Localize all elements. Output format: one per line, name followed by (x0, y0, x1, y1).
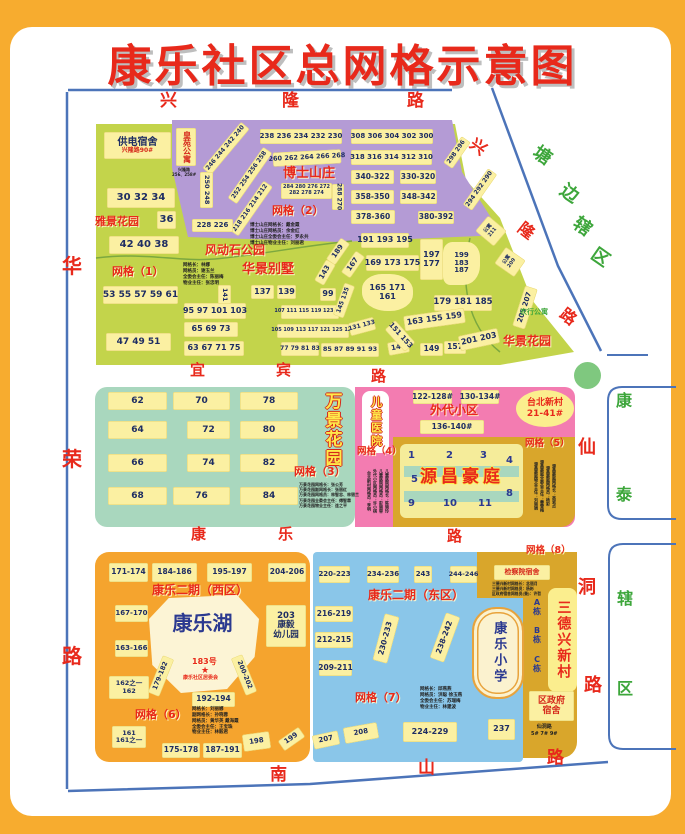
grid-note: 源昌豪庭网格长：高淑贞源昌豪庭网格员：杨彩源昌豪庭全委会主任：秦雪梅源昌豪庭物业… (528, 453, 562, 519)
district-label: 区 (617, 680, 633, 698)
building-box: 195-197 (207, 563, 252, 582)
number-label: 11 (478, 498, 492, 509)
building-box: 330-320 (400, 170, 436, 184)
building-box: 184-186 (152, 563, 197, 582)
district-label: 泰 (616, 486, 632, 504)
building-box: 380-392 (418, 211, 454, 224)
road-label: 洞 (578, 578, 596, 598)
building-box: 358-350 (351, 190, 394, 204)
area-label: 网格（5） (525, 439, 570, 450)
building-box: 171-174 (109, 563, 148, 582)
building-box: 65 69 73 (184, 322, 238, 337)
building-box: 224-229 (403, 722, 457, 742)
building-box: 供电宿舍兴隆路90# (104, 132, 171, 159)
building-box: 74 (187, 454, 230, 472)
building-box: 68 (108, 487, 167, 505)
building-box: 85 87 89 91 93 (321, 343, 379, 357)
road-label: 宾 (276, 362, 291, 379)
building-box: 64 (108, 421, 167, 439)
school-block: 康乐小学 (472, 607, 524, 699)
building-box: 199183187 (443, 242, 480, 285)
grid-note: 网格长：刘丽娜副网格长：孙晓蓉网格员：黄华英 戴海霞全委会主任：王宝珠物业主任：… (192, 707, 239, 736)
building-box: 141 (218, 285, 231, 304)
grid-note: 网格长：邱燕燕网格员：洪聪 徐玉燕全委会主任：苏瑞梅物业主任：林建波 (420, 687, 462, 710)
number-label: 8 (506, 488, 513, 499)
area-label: 网格（7） (355, 692, 407, 704)
building-box: 220-223 (319, 566, 350, 583)
grid-note: 三德兴新村网格长：念丽月三德兴新村网格员：杨彬区政府宿舍网格员(兼)：许哲 (492, 582, 541, 597)
number-label: 3 (480, 450, 487, 461)
roundabout (574, 362, 601, 389)
building-box: 139 (277, 285, 296, 299)
building-box: 137 (251, 285, 274, 299)
area-label: 华景花园 (503, 335, 551, 348)
area-label: 儿童医院 (365, 393, 386, 450)
number-label: 9 (408, 498, 415, 509)
area-label: 网格（6） (135, 709, 187, 721)
building-box: 70 (173, 392, 230, 410)
building-box: 53 55 57 59 61 (103, 286, 178, 304)
building-box: 348-342 (400, 190, 437, 204)
building-box: 163-166 (115, 640, 148, 657)
community-map: 康乐社区总网格示意图 兴隆路兴隆路华荣路宜宾路康乐路南山路仙洞路塘边辖区康泰辖区… (0, 0, 685, 834)
building-box: 234-236 (367, 566, 399, 583)
grid-note: 兴隆路256、258# (172, 167, 196, 177)
road-label: 路 (584, 676, 602, 696)
building-box: 204-206 (268, 563, 306, 582)
building-box: 209-211 (319, 660, 352, 676)
building-box: 203康毅幼儿园 (266, 605, 306, 647)
road-label: 华 (62, 255, 82, 277)
building-box: 77 79 81 83 (281, 342, 319, 356)
building-box: 72 (187, 421, 230, 439)
road-label: 兴 (160, 92, 177, 111)
road-label: 仙 (578, 438, 596, 458)
building-box: 63 67 71 75 (184, 341, 244, 356)
building-box: 台北新村21-41# (516, 390, 574, 427)
building-box: 82 (240, 454, 298, 472)
number-label: 1 (408, 450, 415, 461)
building-box: 99 (320, 288, 336, 301)
road-label: 山 (418, 759, 435, 778)
road-label: 路 (547, 749, 564, 768)
building-box: 228 226 (192, 219, 233, 232)
building-box: 区政府宿舍 (529, 691, 574, 721)
grid-note: 万景花园网格长：张公芳万景花园副网格长：张丽红万景花园网格员：林智忠、林银兰万景… (299, 482, 359, 508)
building-box: 165 171161 (362, 274, 413, 311)
area-label: 华景别墅 (242, 263, 294, 278)
number-label: 10 (443, 498, 457, 509)
building-box: 237 (488, 719, 515, 740)
building-box: 187-191 (203, 743, 242, 758)
building-box: 130-134# (461, 390, 499, 404)
building-box: 107 111 115 119 123 127 (281, 305, 339, 319)
number-label: A栋 (533, 599, 541, 617)
building-box: 175-178 (162, 743, 200, 758)
building-box: 42 40 38 (109, 236, 179, 254)
area-label: 网格（4） (357, 447, 402, 458)
lake-label: 康乐湖 (160, 612, 245, 634)
building-box: 243 (414, 566, 432, 583)
number-label: B栋 (533, 627, 541, 645)
building-box: 皇苑公寓 (176, 128, 196, 166)
building-box: 250 248 (200, 172, 213, 208)
building-box: 244-246 (450, 566, 477, 583)
road-label: 路 (371, 368, 386, 385)
building-box: 162之一162 (109, 676, 149, 699)
number-label: 2 (446, 450, 453, 461)
grid-note: 儿童医院网格长：陈晓玲儿童医院网格员：彭丽容外代小区网格员：许小棋台北新村网格员… (359, 460, 397, 522)
area-label: 康乐社区居委会 (183, 676, 218, 682)
road-label: 路 (62, 645, 82, 667)
building-box: 378-360 (351, 210, 395, 224)
building-box: 136-140# (420, 420, 484, 434)
building-box: 216-219 (315, 606, 353, 622)
road-line-nanshan (68, 762, 608, 791)
building-box: 122-128# (413, 390, 452, 404)
road-label: 乐 (278, 526, 293, 543)
building-box: 95 97 101 103 (184, 303, 246, 319)
building-box: 三德兴新村 (548, 588, 577, 692)
building-box: 169 173 175 (366, 255, 419, 271)
bracket-xiaqu (609, 544, 676, 749)
road-label: 荣 (62, 448, 82, 470)
area-label: 康乐二期（东区） (368, 589, 464, 602)
building-box: 212-215 (315, 632, 353, 648)
building-box: 318 316 314 312 310 (351, 150, 432, 165)
area-label: 雅景花园 (95, 216, 139, 228)
building-box: 105 109 113 117 121 125 129 (277, 324, 349, 338)
area-label: 万景花园 (316, 390, 346, 470)
building-box: 149 (420, 343, 443, 356)
building-box: 66 (108, 454, 167, 472)
building-box: 288 270 (332, 184, 344, 210)
area-label: 外代小区 (430, 404, 478, 417)
grid-note: 网格长：林娜网格员：谢玉兰全委会主任：陈丽梅物业主任：张忠明 (183, 263, 224, 286)
building-box: 76 (173, 487, 230, 505)
road-label: 路 (407, 92, 424, 111)
building-box: 80 (240, 421, 298, 439)
number-label: C栋 (533, 656, 541, 674)
building-box: 191 193 195 (361, 233, 409, 248)
grid-note: 仙洞路5# 7# 9# (531, 724, 558, 737)
building-box: 238 236 234 232 230 (260, 129, 342, 144)
district-label: 辖 (617, 590, 633, 608)
area-label: 网格（1） (112, 266, 164, 278)
building-box: 192-194 (192, 692, 235, 707)
area-label: 网格（8） (526, 546, 571, 557)
road-label: 宜 (190, 362, 205, 379)
building-box: 62 (108, 392, 167, 410)
building-box: 308 306 304 302 300 (351, 129, 433, 144)
area-label: 源昌豪庭 (420, 468, 504, 487)
district-label: 农行公寓 (520, 309, 548, 317)
building-box: 284 280 276 272282 278 274 (281, 183, 332, 199)
area-label: 博士山庄 (283, 167, 335, 182)
building-box: 78 (240, 392, 298, 410)
road-label: 路 (447, 528, 462, 545)
road-label: 隆 (282, 92, 299, 111)
building-box: 161161之一 (112, 726, 146, 748)
number-label: 4 (506, 455, 513, 466)
building-box: 340-322 (351, 170, 394, 184)
building-box: 检察院宿舍 (494, 565, 550, 580)
area-label: 网格（2） (272, 205, 324, 217)
area-label: 网格（3） (294, 466, 346, 478)
building-box: 167-170 (115, 605, 148, 622)
building-box: 30 32 34 (107, 188, 175, 208)
building-box: 47 49 51 (106, 333, 171, 351)
building-box: 84 (240, 487, 298, 505)
district-label: 康 (616, 392, 632, 410)
road-label: 南 (270, 766, 287, 785)
grid-note: 博士山庄网格长：戴金霞博士山庄网格员：余金红博士山庄全委会主任：罗永共博士山庄物… (250, 223, 309, 246)
building-box: 197177 (420, 239, 443, 280)
number-label: 5 (411, 474, 418, 485)
building-box: 36 (157, 211, 176, 229)
road-label: 康 (191, 526, 206, 543)
